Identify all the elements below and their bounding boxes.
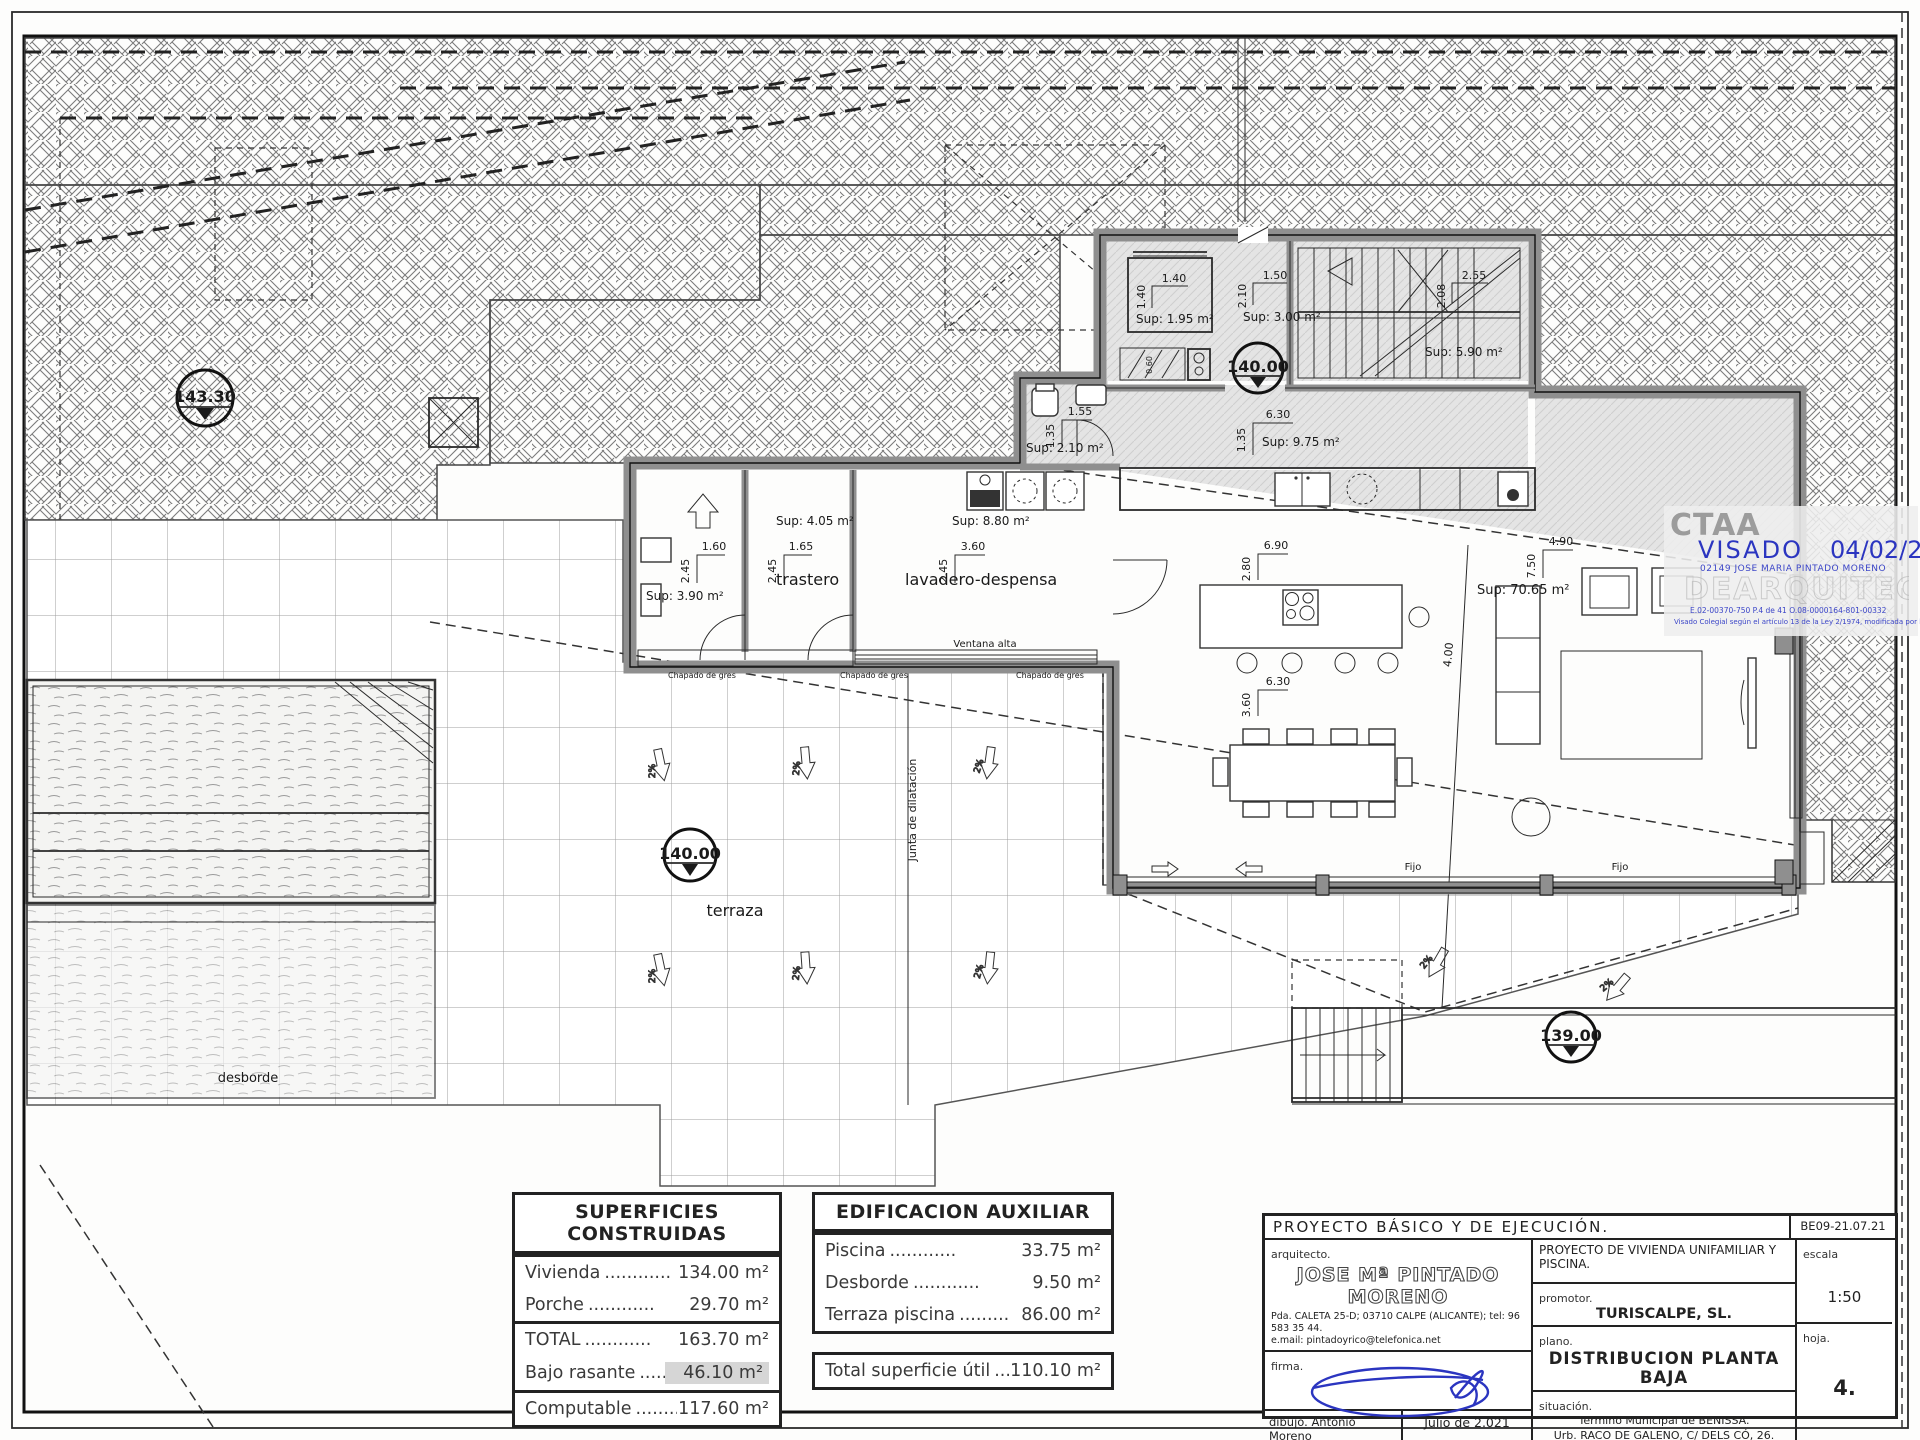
situacion-line2: Urb. RACO DE GALENO, C/ DELS CÓ, 26.: [1539, 1429, 1789, 1440]
svg-text:1.55: 1.55: [1068, 405, 1093, 418]
svg-text:2.08: 2.08: [1435, 284, 1448, 309]
promotor-name: TURISCALPE, SL.: [1539, 1306, 1789, 1322]
drawing-sheet: desborde: [0, 0, 1920, 1440]
total-util-box: Total superficie útil ..... 110.10 m²: [812, 1352, 1114, 1390]
stamp-visado: VISADO: [1698, 536, 1803, 564]
table-row: Computable ......... 117.60 m²: [515, 1393, 779, 1425]
table-row: Bajo rasante ........... 46.10 m²: [515, 1356, 779, 1390]
stamp-date: 04/02/22: [1830, 536, 1920, 564]
svg-text:139.00: 139.00: [1540, 1026, 1602, 1045]
svg-text:143.30: 143.30: [174, 387, 236, 406]
svg-text:1.60: 1.60: [702, 540, 727, 553]
sup-lavadero: Sup: 8.80 m²: [952, 514, 1030, 528]
auxiliar-table: EDIFICACION AUXILIAR Piscina ...........…: [812, 1192, 1114, 1334]
sup-lift: Sup: 1.95 m²: [1136, 312, 1214, 326]
terraza-label: terraza: [707, 901, 764, 920]
sup-hall: Sup: 3.00 m²: [1243, 310, 1321, 324]
trastero-label: trastero: [776, 570, 839, 589]
svg-text:2%: 2%: [792, 760, 803, 776]
svg-text:3.60: 3.60: [961, 540, 986, 553]
svg-text:6.90: 6.90: [1264, 539, 1289, 552]
ventana-alta-label: Ventana alta: [953, 639, 1016, 650]
svg-text:140.00: 140.00: [659, 844, 721, 863]
svg-text:2.45: 2.45: [679, 559, 692, 584]
stamp-refs: E.02-00370-750 P.4 de 41 O.08-0000164-80…: [1690, 606, 1886, 615]
pool-overflow: desborde: [27, 905, 435, 1098]
svg-text:2.80: 2.80: [1240, 557, 1253, 582]
arquitecto-label: arquitecto.: [1271, 1248, 1331, 1261]
stamp-colegiado: 02149 JOSE MARIA PINTADO MORENO: [1700, 564, 1886, 574]
sup-trastero: Sup: 4.05 m²: [776, 514, 854, 528]
stamp-watermark: DEARQUITECTOS: [1684, 572, 1909, 607]
architect-email: e.mail: pintadoyrico@telefonica.net: [1271, 1335, 1525, 1347]
up-arrow-icon: [688, 494, 718, 528]
firma-label: firma.: [1271, 1360, 1303, 1373]
svg-text:6.30: 6.30: [1266, 408, 1291, 421]
svg-text:1.40: 1.40: [1162, 272, 1187, 285]
superficies-table: SUPERFICIES CONSTRUIDAS Vivienda .......…: [512, 1192, 782, 1428]
laundry-appliances: [967, 472, 1084, 510]
chapado-label-1: Chapado de gres: [668, 671, 736, 680]
svg-text:2%: 2%: [648, 763, 658, 778]
escala-label: escala: [1803, 1248, 1838, 1261]
svg-text:6.30: 6.30: [1266, 675, 1291, 688]
table-row: Vivienda ............ 134.00 m²: [515, 1257, 779, 1289]
auxiliar-title: EDIFICACION AUXILIAR: [815, 1195, 1111, 1232]
svg-text:1.40: 1.40: [1135, 285, 1148, 310]
svg-text:4.90: 4.90: [1549, 535, 1574, 548]
svg-text:140.00: 140.00: [1227, 357, 1289, 376]
sup-wc: Sup: 2.10 m²: [1026, 441, 1104, 455]
escala-value: 1:50: [1803, 1288, 1886, 1306]
stamp-legal: Visado Colegial según el artículo 13 de …: [1674, 618, 1920, 626]
table-row: Desborde ............ 9.50 m²: [815, 1267, 1111, 1299]
table-row: Total superficie útil ..... 110.10 m²: [815, 1355, 1111, 1387]
svg-text:2%: 2%: [792, 965, 803, 981]
pool: [27, 680, 435, 903]
level-marker-lower: 139.00: [1540, 1012, 1602, 1062]
sup-room-a: Sup: 3.90 m²: [646, 589, 724, 603]
hoja-value: 4.: [1803, 1376, 1886, 1400]
visado-stamp: DEARQUITECTOS CTAA VISADO 04/02/22 02149…: [1664, 506, 1918, 636]
fijo-label-2: Fijo: [1612, 862, 1629, 873]
promotor-label: promotor.: [1539, 1292, 1593, 1305]
chapado-label-2: Chapado de gres: [840, 671, 908, 680]
architect-name: JOSE Mª PINTADO MORENO: [1271, 1264, 1525, 1308]
lavadero-label: lavadero-despensa: [905, 570, 1057, 589]
svg-text:0.60: 0.60: [1145, 356, 1154, 374]
svg-text:7.50: 7.50: [1525, 554, 1538, 579]
sup-stairs: Sup: 5.90 m²: [1425, 345, 1503, 359]
svg-text:1.35: 1.35: [1235, 428, 1248, 453]
svg-text:2.55: 2.55: [1462, 269, 1487, 282]
desborde-label: desborde: [218, 1071, 279, 1086]
svg-text:2%: 2%: [648, 968, 658, 983]
highlighted-value: 46.10 m²: [665, 1362, 769, 1384]
plano-label: plano.: [1539, 1335, 1573, 1348]
title-block: PROYECTO BÁSICO Y DE EJECUCIÓN. BE09-21.…: [1262, 1213, 1898, 1419]
svg-text:1.65: 1.65: [789, 540, 814, 553]
table-row: Piscina ............ 33.75 m²: [815, 1235, 1111, 1267]
table-row: Porche ............ 29.70 m²: [515, 1289, 779, 1321]
chapado-label-3: Chapado de gres: [1016, 671, 1084, 680]
project-code: BE09-21.07.21: [1789, 1216, 1895, 1238]
junta-label: Junta de dilatación: [906, 759, 919, 863]
svg-text:3.60: 3.60: [1240, 693, 1253, 718]
svg-text:4.00: 4.00: [1441, 642, 1456, 668]
architect-address: Pda. CALETA 25-D; 03710 CALPE (ALICANTE)…: [1271, 1311, 1525, 1335]
slide-arrow-right-icon: [1152, 862, 1178, 876]
plano-name: DISTRIBUCION PLANTA BAJA: [1539, 1349, 1789, 1387]
situacion-line1: Termino Municipal de BENISSA.: [1539, 1414, 1789, 1429]
fijo-label-1: Fijo: [1405, 862, 1422, 873]
project-title: PROYECTO BÁSICO Y DE EJECUCIÓN.: [1265, 1216, 1789, 1238]
project-desc: PROYECTO DE VIVIENDA UNIFAMILIAR Y PISCI…: [1533, 1240, 1795, 1284]
situacion-label: situación.: [1539, 1400, 1592, 1413]
table-row: Terraza piscina ............ 86.00 m²: [815, 1299, 1111, 1331]
hoja-label: hoja.: [1803, 1332, 1830, 1345]
svg-text:1.50: 1.50: [1263, 269, 1288, 282]
sup-living: Sup: 70.65 m²: [1477, 583, 1569, 598]
signature: [1305, 1358, 1505, 1420]
superficies-title: SUPERFICIES CONSTRUIDAS: [515, 1195, 779, 1254]
slide-arrow-left-icon: [1236, 862, 1262, 876]
sup-corridor: Sup: 9.75 m²: [1262, 435, 1340, 449]
table-row: TOTAL ............ 163.70 m²: [515, 1324, 779, 1356]
svg-text:2.10: 2.10: [1236, 284, 1249, 309]
svg-text:2%: 2%: [1599, 977, 1617, 994]
